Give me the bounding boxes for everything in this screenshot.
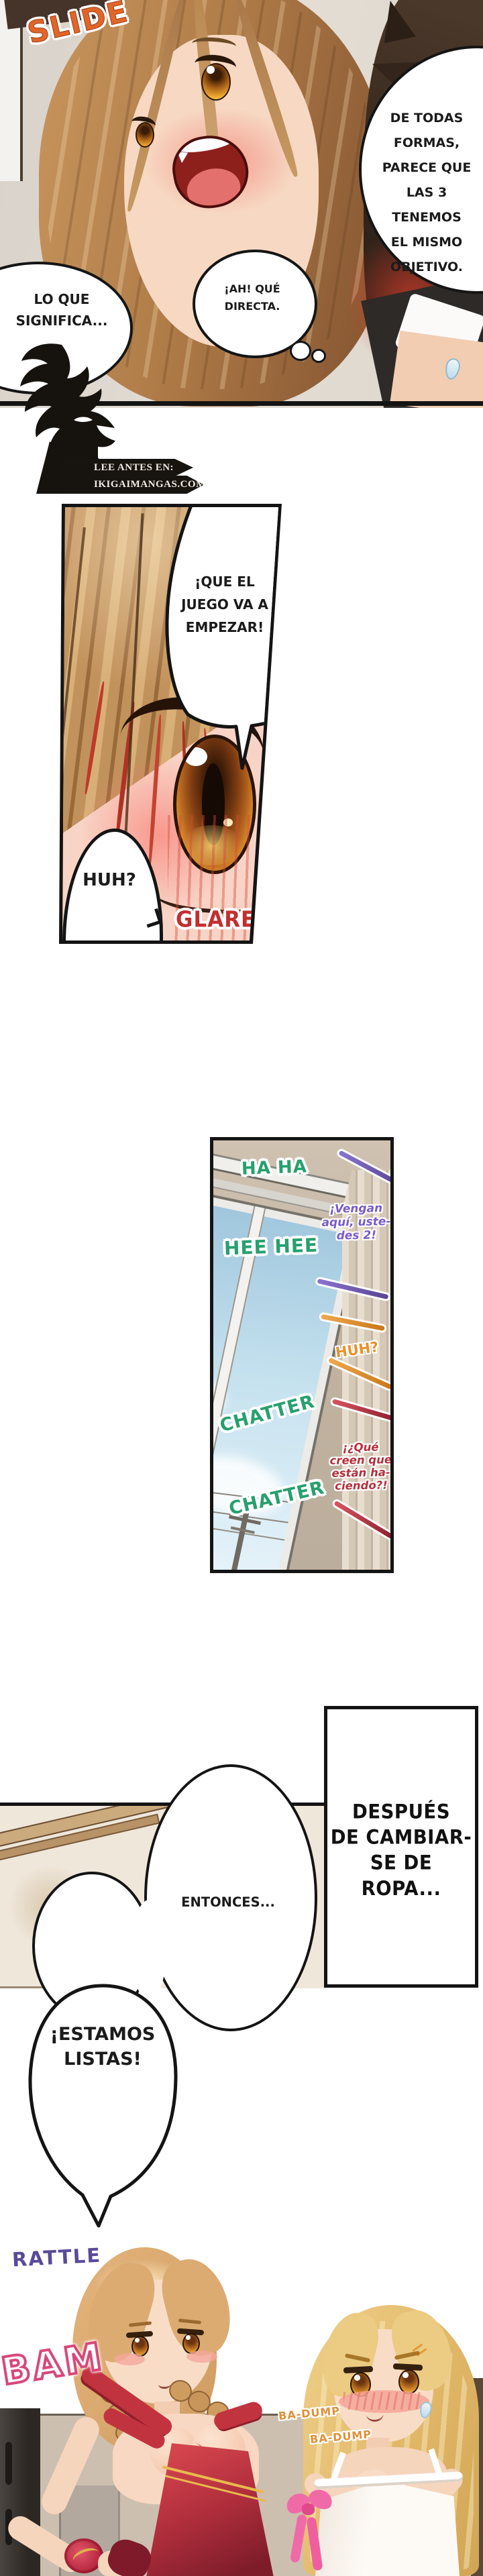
panel-2: ¡QUE EL JUEGO VA A EMPEZAR! HUH? GLARE bbox=[52, 500, 288, 948]
bubble-line: EMPEZAR! bbox=[174, 616, 275, 639]
caption-box: DESPUÉS DE CAMBIAR- SE DE ROPA... bbox=[324, 1706, 478, 1988]
blush-art bbox=[114, 2353, 145, 2365]
bubble-line: DE TODAS bbox=[373, 106, 480, 131]
iris-art bbox=[201, 63, 231, 101]
bubble-line: OBJETIVO. bbox=[373, 255, 480, 280]
manga-page: DE TODAS FORMAS, PARECE QUE LAS 3 TENEMO… bbox=[0, 0, 483, 2576]
panel-2-art: ¡QUE EL JUEGO VA A EMPEZAR! HUH? GLARE bbox=[52, 500, 288, 948]
mouth-art bbox=[158, 2380, 170, 2389]
shout-line: aquí, uste- bbox=[318, 1215, 394, 1230]
speech-bubble-huh-text: HUH? bbox=[72, 870, 146, 890]
appliance-handle-art bbox=[5, 2442, 12, 2485]
bubble-line: ¡AH! QUÉ bbox=[199, 280, 306, 298]
speech-bubble-objective-text: DE TODAS FORMAS, PARECE QUE LAS 3 TENEMO… bbox=[373, 106, 480, 280]
bubble-line: LAS 3 TENEMOS bbox=[373, 180, 480, 230]
bubble-line: EL MISMO bbox=[373, 230, 480, 255]
caption-line: DESPUÉS bbox=[327, 1799, 475, 1825]
girl-right-eye-art bbox=[195, 58, 236, 103]
glint-art bbox=[186, 2335, 191, 2340]
blush-art bbox=[186, 2351, 217, 2363]
thought-tail-circle bbox=[290, 341, 311, 361]
sfx-rattle: RATTLE bbox=[11, 2244, 102, 2271]
bubble-line: ¡QUE EL bbox=[174, 570, 275, 593]
glint-art bbox=[402, 2372, 409, 2378]
fang-art bbox=[176, 152, 188, 163]
caption-text: DESPUÉS DE CAMBIAR- SE DE ROPA... bbox=[327, 1799, 475, 1902]
caption-line: DE CAMBIAR- bbox=[327, 1825, 475, 1850]
panel-3: HA HA ¡Vengan aquí, uste- des 2! HEE HEE… bbox=[210, 1137, 394, 1573]
thought-bubble-direct-text: ¡AH! QUÉ DIRECTA. bbox=[199, 280, 306, 315]
bubble-line: LO QUE bbox=[1, 288, 122, 310]
speech-bubble-meaning-text: LO QUE SIGNIFICA... bbox=[1, 288, 122, 331]
caption-line: SE DE ROPA... bbox=[327, 1850, 475, 1901]
girl-left-eye-art bbox=[133, 118, 154, 146]
speech-bubble-game-text: ¡QUE EL JUEGO VA A EMPEZAR! bbox=[174, 570, 275, 639]
promo-banner-text: LEE ANTES EN: bbox=[94, 459, 193, 476]
blush-hatch-art bbox=[343, 2392, 424, 2410]
listener-neck-art bbox=[390, 331, 483, 408]
crossarm-art bbox=[231, 1526, 255, 1534]
speech-bubble-listas bbox=[17, 1979, 188, 2231]
bubble-line: ¡ESTAMOS bbox=[46, 2022, 160, 2047]
sfx-ha-ha: HA HA bbox=[241, 1157, 308, 1179]
shout-vengan: ¡Vengan aquí, uste- des 2! bbox=[317, 1201, 394, 1243]
ribbon-knot-art bbox=[302, 2504, 315, 2515]
glint-art bbox=[354, 2375, 360, 2381]
shout-line: ¡¿Qué bbox=[327, 1440, 394, 1454]
bubble-line: SIGNIFICA... bbox=[1, 310, 122, 331]
shout-line: creen que bbox=[327, 1453, 394, 1467]
bubble-line: LISTAS! bbox=[46, 2047, 160, 2072]
speech-bubble-listas-text: ¡ESTAMOS LISTAS! bbox=[46, 2022, 160, 2072]
glint-art bbox=[207, 66, 215, 74]
sfx-glare: GLARE bbox=[176, 907, 256, 932]
bubble-line: DIRECTA. bbox=[199, 298, 306, 315]
sfx-hee-hee: HEE HEE bbox=[223, 1234, 318, 1260]
promo-banner-line2: IKIGAIMANGAS.COM bbox=[62, 476, 204, 494]
speech-bubble-entonces-text: ENTONCES... bbox=[176, 1894, 280, 1910]
shout-que-creen: ¡¿Qué creen que están ha- ciendo?! bbox=[327, 1440, 394, 1493]
shout-line: están ha- bbox=[327, 1466, 394, 1480]
bubble-line: FORMAS, bbox=[373, 131, 480, 156]
bubble-line: PARECE QUE bbox=[373, 156, 480, 180]
bubble-line: JUEGO VA A bbox=[174, 593, 275, 616]
shout-line: ¡Vengan bbox=[317, 1201, 394, 1216]
thought-tail-circle bbox=[311, 349, 326, 363]
shout-line: des 2! bbox=[318, 1228, 394, 1243]
promo-banner-line1: LEE ANTES EN: bbox=[62, 459, 193, 476]
glint-art bbox=[135, 2338, 140, 2343]
shout-line: ciendo?! bbox=[327, 1479, 394, 1493]
promo-banner-text: IKIGAIMANGAS.COM bbox=[94, 476, 204, 494]
